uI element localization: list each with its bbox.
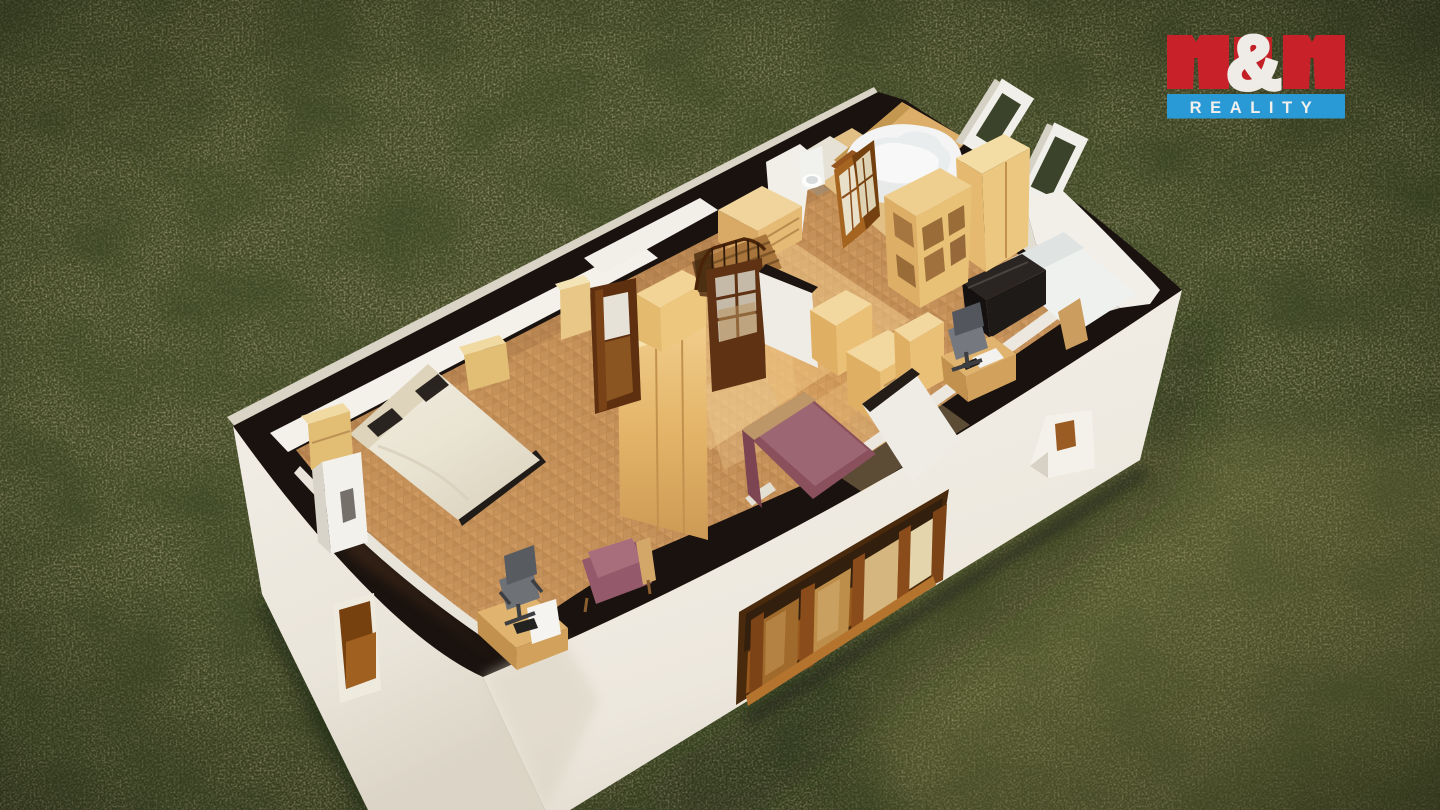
svg-text:REALITY: REALITY (1190, 99, 1321, 117)
svg-text:&: & (1227, 21, 1282, 106)
